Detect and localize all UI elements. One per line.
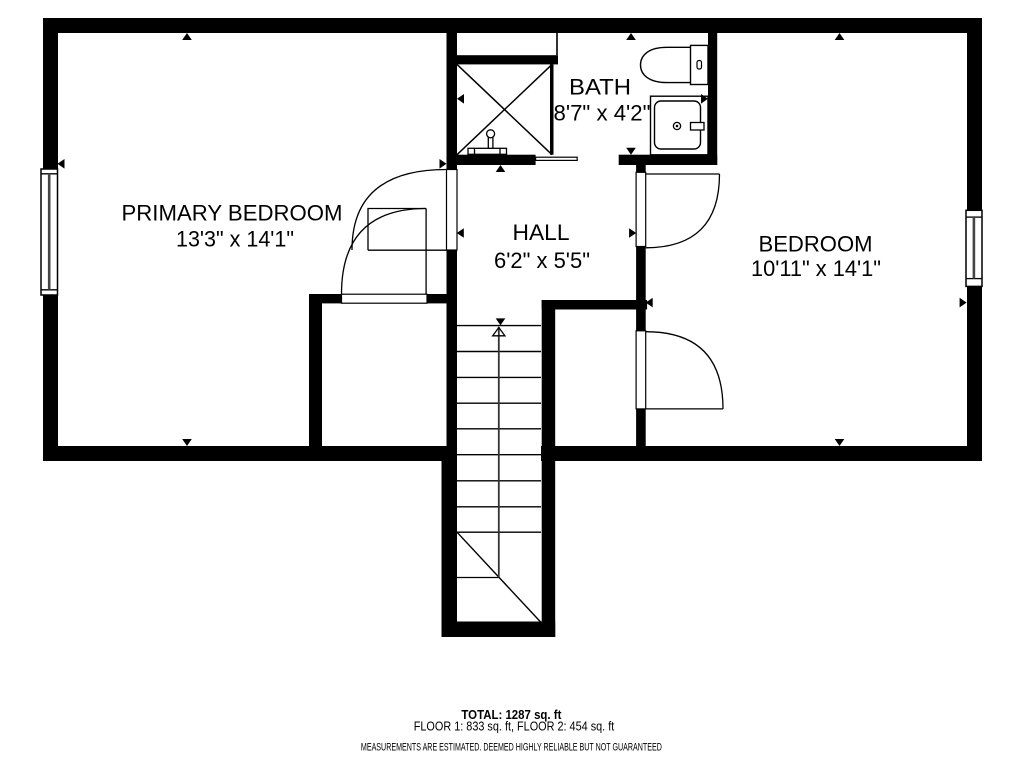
svg-text:BEDROOM: BEDROOM (759, 232, 873, 257)
svg-text:8'7" x 4'2": 8'7" x 4'2" (554, 101, 651, 126)
svg-text:MEASUREMENTS ARE ESTIMATED. DE: MEASUREMENTS ARE ESTIMATED. DEEMED HIGHL… (361, 742, 662, 754)
svg-text:10'11" x 14'1": 10'11" x 14'1" (751, 256, 881, 281)
svg-text:BATH: BATH (569, 75, 631, 100)
svg-text:PRIMARY BEDROOM: PRIMARY BEDROOM (122, 201, 343, 226)
svg-text:FLOOR 1: 833 sq. ft, FLOOR 2:: FLOOR 1: 833 sq. ft, FLOOR 2: 454 sq. ft (414, 719, 615, 733)
svg-text:13'3" x 14'1": 13'3" x 14'1" (176, 227, 294, 252)
svg-text:6'2" x 5'5": 6'2" x 5'5" (494, 248, 590, 273)
svg-text:HALL: HALL (513, 220, 570, 245)
